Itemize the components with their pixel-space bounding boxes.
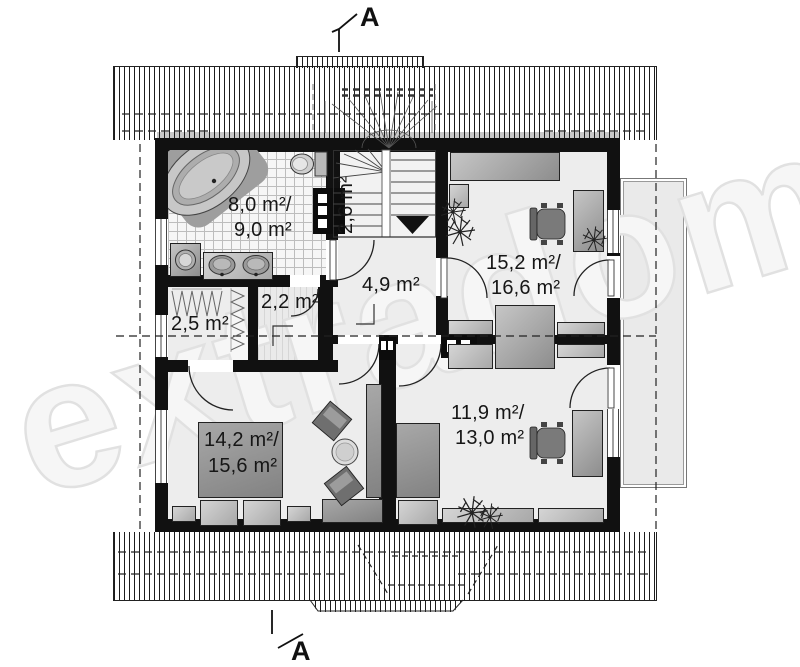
wall-exterior-top — [155, 138, 620, 152]
bed-pillow-right — [243, 500, 281, 526]
bed-foot-bottom-right — [398, 500, 438, 525]
balcony — [620, 178, 687, 488]
bed-top-right — [450, 152, 560, 181]
floor-plan: extradom — [0, 0, 800, 667]
desk-bottom-right — [572, 410, 603, 477]
wall-stub-2 — [326, 279, 338, 287]
window-wardrobe — [155, 315, 168, 357]
wall-storage-east — [318, 287, 333, 360]
doorway-storage — [290, 275, 320, 287]
built-in-wardrobe-1 — [448, 320, 493, 335]
label-storage-area: 2,2 m² — [261, 291, 319, 313]
label-wardrobe-area: 2,5 m² — [171, 313, 229, 335]
label-bedroom-bottom-right-area-alt: 13,0 m² — [455, 427, 524, 449]
nightstand-left-2 — [287, 506, 311, 522]
doorway-bedroom-top-right — [436, 258, 448, 296]
shelf-bottom-right-2 — [538, 508, 604, 523]
wall-closets-south — [155, 360, 338, 372]
section-marker-top: A — [360, 2, 380, 33]
label-bathroom-area-alt: 9,0 m² — [234, 219, 292, 241]
built-in-wardrobe-2 — [448, 344, 493, 369]
window-bedroom-top-right — [607, 210, 620, 253]
label-hall-area: 4,9 m² — [362, 274, 420, 296]
doorway-balcony-top — [607, 256, 620, 298]
doorway-bedroom-left — [338, 335, 379, 344]
wall-wardrobe-storage — [248, 287, 258, 360]
built-in-wardrobe-3 — [495, 305, 555, 369]
sink-counter — [203, 252, 273, 280]
label-bathroom-area: 8,0 m²/ — [228, 194, 292, 216]
label-bedroom-bottom-left-area-alt: 15,6 m² — [208, 455, 277, 477]
shelf-bottom-right-1 — [442, 508, 534, 523]
window-bedroom-bottom-right — [607, 409, 620, 457]
doorway-wardrobe — [188, 360, 233, 372]
roof-dormer-bottom — [310, 600, 463, 612]
label-bedroom-bottom-left-area: 14,2 m²/ — [204, 429, 279, 451]
roof-band-top — [113, 66, 657, 140]
built-in-wardrobe-5 — [557, 344, 605, 358]
roof-band-bottom — [113, 532, 657, 601]
nightstand-left-1 — [172, 506, 196, 522]
window-bathroom — [155, 219, 168, 265]
doorway-balcony-bottom — [607, 365, 620, 409]
wardrobe-l-vertical — [366, 384, 382, 498]
doorway-bedroom-right — [398, 335, 441, 344]
label-bedroom-top-right-area-alt: 16,6 m² — [491, 277, 560, 299]
washing-machine — [170, 243, 201, 277]
built-in-wardrobe-4 — [557, 322, 605, 335]
label-bedroom-bottom-right-area: 11,9 m²/ — [451, 402, 524, 424]
label-bedroom-top-right-area: 15,2 m²/ — [486, 252, 561, 274]
window-bedroom-left — [155, 410, 168, 483]
wall-hall-east — [436, 138, 448, 258]
label-stairs-area: 2,6 m² — [335, 155, 357, 255]
bed-pillow-left — [200, 500, 238, 526]
wardrobe-l-horizontal — [322, 499, 383, 523]
chimney-stack-2 — [379, 336, 396, 360]
bed-bottom-right — [396, 423, 440, 498]
section-marker-bottom: A — [291, 636, 311, 667]
desk-top-right — [573, 190, 604, 252]
nightstand-top-right — [449, 184, 469, 208]
